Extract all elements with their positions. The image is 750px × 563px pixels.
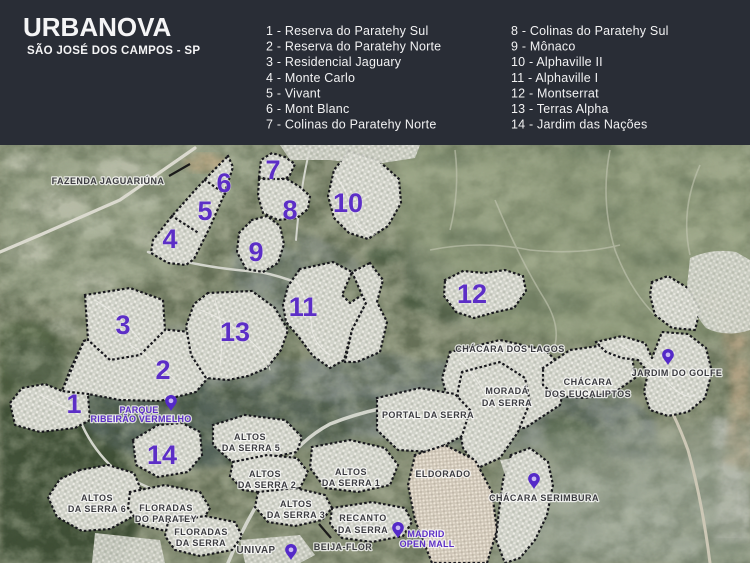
svg-text:MADRID: MADRID — [407, 529, 444, 539]
svg-text:FLORADAS: FLORADAS — [174, 527, 228, 537]
svg-text:ELDORADO: ELDORADO — [415, 469, 470, 479]
svg-text:CHÁCARA: CHÁCARA — [564, 377, 613, 387]
svg-text:11: 11 — [289, 292, 318, 322]
svg-text:RIBEIRÃO VERMELHO: RIBEIRÃO VERMELHO — [91, 414, 192, 424]
svg-text:MORADÁ: MORADÁ — [485, 386, 528, 396]
svg-text:DA SERRA: DA SERRA — [176, 538, 226, 548]
svg-text:9 - Mônaco: 9 - Mônaco — [511, 40, 576, 54]
svg-text:DA SERRA 2: DA SERRA 2 — [238, 480, 296, 490]
svg-text:13: 13 — [220, 317, 250, 347]
svg-text:4 - Monte Carlo: 4 - Monte Carlo — [266, 71, 355, 85]
svg-text:2 - Reserva do Paratehy Norte: 2 - Reserva do Paratehy Norte — [266, 40, 441, 54]
svg-text:UNIVAP: UNIVAP — [237, 545, 276, 556]
svg-text:2: 2 — [155, 355, 170, 385]
svg-text:DO PARATEY: DO PARATEY — [135, 514, 197, 524]
svg-text:DOS EUCALIPTOS: DOS EUCALIPTOS — [545, 389, 631, 399]
svg-text:OPEN MALL: OPEN MALL — [400, 539, 455, 549]
svg-text:DA SERRA: DA SERRA — [482, 398, 532, 408]
svg-text:5: 5 — [197, 196, 212, 226]
svg-text:DA SERRA 1: DA SERRA 1 — [322, 478, 380, 488]
svg-text:3 - Residencial Jaguary: 3 - Residencial Jaguary — [266, 55, 402, 69]
svg-text:ALTOS: ALTOS — [234, 432, 266, 442]
svg-text:DA SERRA 6: DA SERRA 6 — [68, 504, 126, 514]
svg-text:5 - Vivant: 5 - Vivant — [266, 86, 321, 100]
svg-text:12: 12 — [457, 279, 487, 309]
svg-text:9: 9 — [248, 237, 263, 267]
svg-text:8: 8 — [282, 195, 297, 225]
svg-text:4: 4 — [162, 224, 177, 254]
svg-text:BEIJA-FLOR: BEIJA-FLOR — [314, 542, 373, 552]
svg-text:CHÁCARA SERIMBURA: CHÁCARA SERIMBURA — [489, 493, 599, 503]
svg-text:1: 1 — [66, 389, 81, 419]
svg-text:DA SERRA: DA SERRA — [338, 525, 388, 535]
svg-text:ALTOS: ALTOS — [335, 467, 367, 477]
svg-text:14: 14 — [147, 440, 177, 470]
svg-text:FAZENDA JAGUARIÚNA: FAZENDA JAGUARIÚNA — [52, 175, 165, 186]
svg-text:12 - Montserrat: 12 - Montserrat — [511, 86, 599, 100]
svg-text:6: 6 — [216, 168, 231, 198]
svg-text:SÃO JOSÉ DOS CAMPOS - SP: SÃO JOSÉ DOS CAMPOS - SP — [27, 44, 200, 57]
svg-text:10: 10 — [333, 188, 363, 218]
svg-text:13 - Terras Alpha: 13 - Terras Alpha — [511, 102, 609, 116]
svg-text:11 - Alphaville I: 11 - Alphaville I — [511, 71, 598, 85]
svg-text:FLORADAS: FLORADAS — [139, 503, 193, 513]
svg-text:7 - Colinas do Paratehy Norte: 7 - Colinas do Paratehy Norte — [266, 118, 436, 132]
svg-text:DA SERRA 5: DA SERRA 5 — [222, 443, 280, 453]
svg-text:DA SERRA 3: DA SERRA 3 — [267, 510, 325, 520]
svg-text:RECANTO: RECANTO — [339, 513, 387, 523]
svg-text:10 - Alphaville II: 10 - Alphaville II — [511, 55, 603, 69]
svg-text:PORTAL DA SERRA: PORTAL DA SERRA — [382, 410, 474, 420]
svg-text:ALTOS: ALTOS — [81, 493, 113, 503]
svg-text:CHÁCARA DOS LAGOS: CHÁCARA DOS LAGOS — [455, 344, 564, 354]
svg-text:14 - Jardim das Nações: 14 - Jardim das Nações — [511, 118, 647, 132]
svg-text:8 - Colinas do Paratehy Sul: 8 - Colinas do Paratehy Sul — [511, 24, 669, 38]
svg-text:7: 7 — [265, 155, 280, 185]
svg-text:3: 3 — [115, 310, 130, 340]
svg-text:1 - Reserva do Paratehy Sul: 1 - Reserva do Paratehy Sul — [266, 24, 428, 38]
svg-text:ALTOS: ALTOS — [249, 469, 281, 479]
svg-text:ALTOS: ALTOS — [280, 499, 312, 509]
svg-text:URBANOVA: URBANOVA — [23, 12, 172, 42]
svg-text:JARDIM DO GOLFE: JARDIM DO GOLFE — [632, 368, 723, 378]
svg-text:6 - Mont Blanc: 6 - Mont Blanc — [266, 102, 349, 116]
